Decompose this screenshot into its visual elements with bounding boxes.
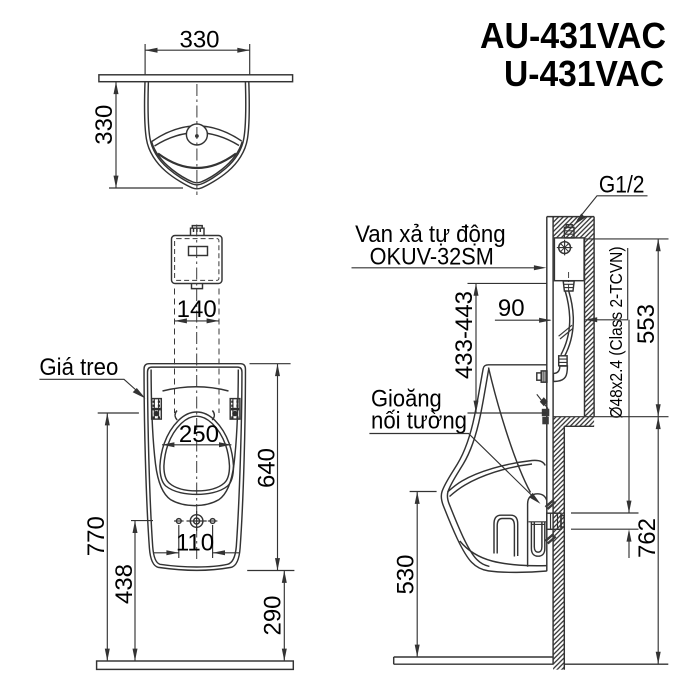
svg-text:770: 770: [83, 516, 110, 556]
svg-text:250: 250: [179, 421, 219, 448]
svg-text:640: 640: [254, 448, 281, 488]
svg-text:U-431VAC: U-431VAC: [504, 53, 664, 94]
svg-text:G1/2: G1/2: [599, 172, 645, 199]
svg-text:553: 553: [633, 304, 660, 344]
svg-text:Giá treo: Giá treo: [39, 354, 118, 381]
svg-text:330: 330: [179, 26, 219, 53]
svg-text:OKUV-32SM: OKUV-32SM: [370, 244, 494, 271]
svg-text:nối tường: nối tường: [371, 408, 467, 435]
svg-text:Ø48x2.4 (Class 2-TCVN): Ø48x2.4 (Class 2-TCVN): [606, 247, 626, 419]
svg-text:140: 140: [177, 296, 217, 323]
svg-text:110: 110: [176, 529, 214, 556]
svg-text:762: 762: [634, 518, 661, 558]
svg-text:530: 530: [393, 554, 420, 594]
svg-text:433-443: 433-443: [451, 291, 478, 379]
svg-text:290: 290: [260, 595, 287, 635]
svg-text:438: 438: [111, 564, 138, 604]
svg-text:330: 330: [91, 105, 118, 145]
svg-text:90: 90: [498, 295, 525, 322]
svg-text:AU-431VAC: AU-431VAC: [480, 15, 666, 56]
